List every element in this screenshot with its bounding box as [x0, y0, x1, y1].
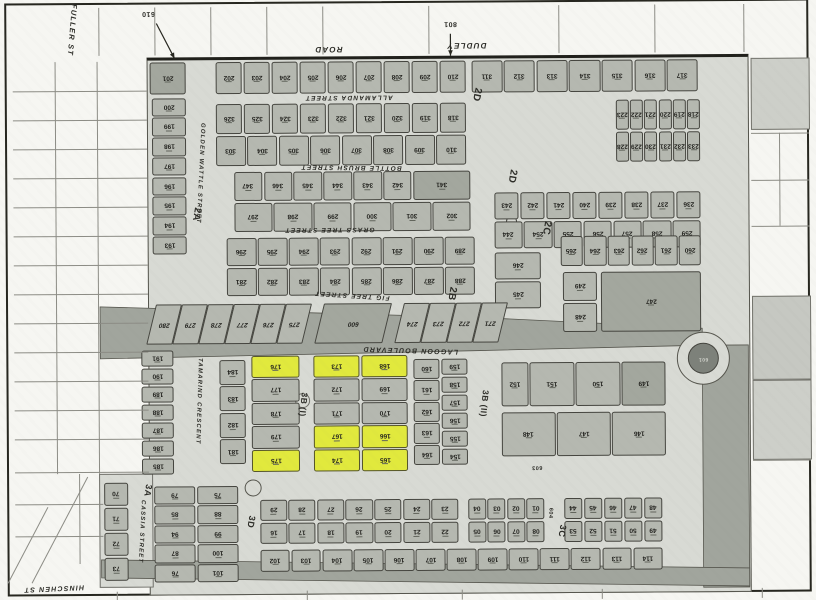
lot-number: 87 — [171, 550, 178, 556]
section-2d-mid: 2D — [506, 169, 519, 184]
lot-area-tick — [259, 154, 265, 155]
block-247-lane: 247 — [600, 270, 702, 333]
block-150s-north: 152151150149 — [500, 360, 666, 407]
lot-area-tick — [577, 290, 583, 291]
lot-206: 206 — [327, 61, 354, 94]
lot-21: 21 — [403, 522, 430, 544]
lot-number: 52 — [590, 527, 597, 533]
lot-47: 47 — [624, 497, 643, 519]
lot-178: 178 — [251, 403, 300, 426]
rural-lot-e2 — [752, 380, 811, 460]
lot-number: 191 — [152, 354, 163, 360]
lot-number: 172 — [331, 386, 342, 392]
lot-02: 02 — [507, 498, 525, 520]
lot-area-tick — [452, 460, 458, 461]
lot-area-tick — [577, 321, 583, 322]
lot-number: 85 — [171, 511, 178, 517]
lot-number: 324 — [279, 114, 290, 120]
row-bottom-lane: 102103104105106107108109110111112113114 — [260, 546, 664, 572]
lot-area-tick — [426, 284, 432, 285]
lot-205: 205 — [299, 61, 326, 94]
block-247: 247 — [600, 270, 702, 333]
lot-188: 188 — [141, 404, 174, 421]
lot-area-tick — [382, 416, 388, 417]
lot-number: 146 — [634, 429, 645, 435]
lot-347: 347 — [234, 172, 263, 202]
road-lot-601: 601 — [698, 356, 708, 362]
lot-area-tick — [334, 440, 340, 441]
lot-172: 172 — [313, 379, 360, 402]
lot-area-tick — [215, 537, 221, 538]
lot-number: 181 — [227, 448, 238, 454]
col-tamarind-east: 184183182181 — [218, 359, 247, 465]
lot-number: 18 — [327, 529, 334, 535]
lot-number: 302 — [446, 212, 457, 218]
lot-319: 319 — [411, 102, 438, 133]
lot-number: 196 — [164, 182, 175, 188]
block-2d-east-lane: 223222221220219218 — [615, 98, 701, 131]
lot-number: 167 — [331, 433, 342, 439]
section-3a: 3A — [142, 484, 154, 498]
lot-number: 23 — [441, 505, 448, 511]
lot-number: 277 — [236, 321, 248, 327]
lot-number: 276 — [262, 321, 274, 327]
lot-number: 289 — [455, 246, 466, 252]
lot-number: 600 — [347, 320, 359, 326]
lot-area-tick — [394, 189, 400, 190]
lot-346: 346 — [264, 171, 293, 201]
lot-157: 157 — [441, 394, 468, 411]
lot-area-tick — [687, 254, 693, 255]
col-tamarind-west: 191190189188187186185 — [140, 349, 175, 475]
lot-area-tick — [385, 153, 391, 154]
lot-88: 88 — [197, 505, 239, 523]
lot-area-tick — [569, 254, 575, 255]
lot-70: 70 — [104, 482, 129, 506]
lot-area-tick — [494, 535, 500, 536]
lot-103: 103 — [291, 549, 321, 572]
lot-167: 167 — [313, 426, 360, 449]
lot-number: 188 — [152, 408, 163, 414]
lot-number: 51 — [610, 527, 617, 533]
lot-244: 244 — [494, 221, 523, 249]
lot-number: 283 — [299, 277, 310, 283]
lot-area-tick — [422, 121, 428, 122]
lot-number: 159 — [449, 362, 460, 368]
lot-number: 290 — [423, 247, 434, 253]
lot-number: 194 — [164, 222, 175, 228]
lot-number: 174 — [332, 456, 343, 462]
lot-number: 110 — [518, 555, 529, 561]
lot-number: 111 — [550, 555, 560, 561]
lot-area-tick — [114, 548, 120, 549]
lot-area-tick — [533, 512, 539, 513]
lot-number: 22 — [442, 528, 449, 534]
lot-101: 101 — [197, 564, 239, 582]
lot-area-tick — [228, 154, 234, 155]
lot-area-tick — [172, 518, 178, 519]
lot-area-tick — [364, 284, 370, 285]
lot-number: 274 — [406, 320, 418, 326]
lot-number: 295 — [267, 248, 278, 254]
street-label-grass-tree: GRASS TREE STREET — [284, 226, 374, 234]
lot-number: 08 — [532, 527, 539, 533]
lot-number: 316 — [644, 71, 655, 77]
lot-number: 221 — [645, 110, 656, 116]
block-bottle-brush: 347346345344343342341297298299300301302 — [233, 170, 471, 233]
lot-area-tick — [423, 372, 429, 373]
lot-200: 200 — [151, 98, 186, 117]
lot-247: 247 — [601, 271, 702, 332]
lot-85: 85 — [154, 506, 196, 524]
lot-number: 298 — [288, 213, 299, 219]
lot-area-tick — [474, 535, 480, 536]
lot-area-tick — [634, 150, 640, 151]
lot-area-tick — [226, 122, 232, 123]
lot-111: 111 — [540, 548, 570, 571]
lot-163: 163 — [413, 423, 440, 443]
lot-27: 27 — [317, 499, 344, 521]
lot-233: 233 — [687, 131, 700, 162]
lot-222: 222 — [630, 99, 643, 130]
row-bottom: 102103104105106107108109110111112113114 — [260, 546, 664, 572]
lot-number: 177 — [270, 386, 281, 392]
lot-area-tick — [677, 150, 683, 151]
lot-number: 239 — [605, 201, 616, 207]
lot-area-tick — [226, 81, 232, 82]
lot-number: 112 — [581, 555, 592, 561]
lot-area-tick — [648, 305, 654, 306]
lot-area-tick — [662, 150, 668, 151]
lot-175: 175 — [252, 450, 301, 473]
lot-165: 165 — [362, 449, 409, 472]
lot-area-tick — [155, 416, 161, 417]
lot-150: 150 — [576, 361, 621, 406]
block-3d-lane: 16171819202122 — [259, 521, 459, 545]
lot-area-tick — [322, 154, 328, 155]
lot-149: 149 — [621, 361, 666, 406]
lot-number: 210 — [447, 72, 458, 78]
lot-305: 305 — [279, 135, 309, 166]
lot-106: 106 — [385, 549, 415, 572]
lot-area-tick — [166, 150, 172, 151]
lot-99: 99 — [197, 525, 239, 543]
lot-318: 318 — [439, 102, 466, 133]
lot-number: 173 — [331, 362, 342, 368]
lot-75: 75 — [197, 486, 239, 504]
lot-number: 73 — [113, 565, 120, 571]
lot-number: 288 — [455, 276, 466, 282]
lot-area-tick — [640, 254, 646, 255]
lot-number: 166 — [379, 432, 390, 438]
lot-number: 20 — [384, 528, 391, 534]
lot-area-tick — [113, 523, 119, 524]
lot-area-tick — [630, 534, 636, 535]
lot-159: 159 — [441, 358, 468, 375]
lot-area-tick — [330, 220, 336, 221]
lot-area-tick — [166, 130, 172, 131]
lot-number: 344 — [332, 182, 343, 188]
lot-area-tick — [356, 513, 362, 514]
parcel-boundary-line — [462, 590, 463, 600]
lot-number: 06 — [493, 528, 500, 534]
lot-number: 07 — [513, 528, 520, 534]
lot-number: 291 — [392, 247, 403, 253]
lot-area-tick — [272, 564, 278, 565]
section-2b: 2B — [445, 286, 458, 301]
lot-169: 169 — [361, 378, 408, 401]
lot-182: 182 — [219, 413, 246, 438]
lot-102: 102 — [260, 549, 290, 572]
lot-16: 16 — [260, 522, 287, 544]
lot-area-tick — [633, 118, 639, 119]
row-dudley-west-lane: 202203204205206207208209210 — [215, 60, 467, 96]
lot-area-tick — [166, 209, 172, 210]
lot-260: 260 — [679, 235, 701, 266]
lot-number: 175 — [271, 457, 282, 463]
lot-243: 243 — [494, 192, 519, 220]
lot-number: 88 — [214, 510, 221, 516]
lot-area-tick — [155, 434, 161, 435]
lot-229: 229 — [630, 131, 643, 162]
lot-number: 104 — [332, 556, 343, 562]
block-bottle-brush-lane: 347346345344343342341 — [233, 170, 471, 202]
lot-area-tick — [636, 437, 642, 438]
road-lot-603: 603 — [532, 464, 543, 470]
lot-107: 107 — [416, 548, 446, 571]
lot-area-tick — [610, 511, 616, 512]
lot-170: 170 — [361, 402, 408, 425]
lot-104: 104 — [322, 549, 352, 572]
lot-295: 295 — [258, 237, 288, 266]
lot-323: 323 — [299, 103, 326, 134]
lot-area-tick — [647, 79, 653, 80]
lot-239: 239 — [598, 191, 623, 219]
lot-area-tick — [452, 406, 458, 407]
lot-number: 263 — [613, 246, 624, 252]
lot-area-tick — [428, 563, 434, 564]
lot-152: 152 — [501, 362, 529, 407]
lot-area-tick — [452, 442, 458, 443]
lot-area-tick — [659, 208, 665, 209]
lot-242: 242 — [520, 192, 545, 220]
lot-number: 244 — [503, 231, 514, 237]
parcel-boundary-line — [117, 592, 118, 600]
lot-01: 01 — [526, 498, 544, 520]
lot-number: 343 — [362, 181, 373, 187]
lot-306: 306 — [310, 135, 340, 166]
lot-154: 154 — [442, 448, 469, 465]
lot-303: 303 — [216, 136, 246, 167]
lot-area-tick — [270, 285, 276, 286]
lot-area-tick — [590, 535, 596, 536]
lot-number: 238 — [631, 201, 642, 207]
lot-344: 344 — [323, 171, 352, 201]
lot-area-tick — [310, 81, 316, 82]
lot-number: 02 — [512, 505, 519, 511]
lot-area-tick — [590, 512, 596, 513]
lot-151: 151 — [530, 362, 575, 407]
lot-area-tick — [385, 536, 391, 537]
lot-73: 73 — [104, 557, 129, 581]
lot-179: 179 — [251, 426, 300, 449]
lot-176: 176 — [251, 355, 300, 378]
lot-area-tick — [676, 118, 682, 119]
lot-number: 229 — [631, 142, 642, 148]
lot-147: 147 — [557, 411, 611, 456]
lot-number: 287 — [424, 277, 435, 283]
lot-area-tick — [450, 121, 456, 122]
lot-291: 291 — [383, 237, 413, 266]
block-248-lane: 249 — [562, 271, 598, 302]
lot-number: 202 — [223, 74, 234, 80]
lot-287: 287 — [414, 266, 444, 295]
lot-237: 237 — [650, 191, 675, 219]
lot-area-tick — [154, 380, 160, 381]
lot-area-tick — [229, 376, 235, 377]
col-2a: 200199198197196195194193 — [151, 97, 188, 255]
lot-03: 03 — [487, 498, 505, 520]
lot-number: 158 — [449, 380, 460, 386]
lot-184: 184 — [219, 360, 246, 385]
lot-area-tick — [474, 512, 480, 513]
lot-312: 312 — [504, 60, 535, 93]
lot-number: 305 — [288, 146, 299, 152]
lot-51: 51 — [604, 520, 623, 542]
lot-29: 29 — [260, 499, 287, 521]
lot-number: 292 — [361, 247, 372, 253]
lot-area-tick — [167, 249, 173, 250]
lot-number: 247 — [646, 297, 657, 303]
lot-area-tick — [424, 415, 430, 416]
lot-area-tick — [270, 255, 276, 256]
lot-100: 100 — [197, 545, 239, 563]
lot-number: 148 — [523, 430, 534, 436]
lot-area-tick — [521, 563, 527, 564]
lot-number: 99 — [214, 530, 221, 536]
lot-number: 203 — [251, 74, 262, 80]
lot-number: 109 — [487, 555, 498, 561]
block-3d-east-lane: 04030201 — [467, 497, 545, 520]
lot-number: 163 — [421, 429, 432, 435]
block-grass-tree: 2962952942932922912902892812822832842852… — [226, 236, 476, 298]
lot-number: 218 — [688, 110, 699, 116]
lot-number: 29 — [270, 506, 277, 512]
lot-area-tick — [424, 458, 430, 459]
lot-area-tick — [610, 534, 616, 535]
lot-area-tick — [449, 219, 455, 220]
lot-number: 342 — [392, 181, 403, 187]
lot-number: 152 — [509, 380, 520, 386]
lot-area-tick — [515, 298, 521, 299]
block-3c-lane: 5352515049 — [563, 519, 663, 543]
lot-number: 154 — [449, 452, 460, 458]
lot-number: 103 — [301, 556, 312, 562]
lot-76: 76 — [154, 564, 196, 582]
lot-241: 241 — [546, 192, 571, 220]
lot-number: 45 — [590, 504, 597, 510]
lot-148: 148 — [501, 412, 555, 457]
lot-area-tick — [365, 563, 371, 564]
rural-lot-e1 — [752, 296, 812, 380]
lot-area-tick — [310, 122, 316, 123]
lot-number: 149 — [638, 379, 649, 385]
lot-308: 308 — [373, 135, 403, 166]
lot-number: 107 — [425, 556, 436, 562]
lot-area-tick — [549, 387, 555, 388]
lot-194: 194 — [152, 217, 187, 236]
lot-area-tick — [334, 393, 340, 394]
lot-area-tick — [215, 498, 221, 499]
lot-number: 21 — [413, 528, 420, 534]
lot-number: 113 — [612, 554, 623, 560]
lot-number: 241 — [553, 201, 564, 207]
lot-number: 46 — [610, 504, 617, 510]
lot-area-tick — [271, 537, 277, 538]
lot-area-tick — [155, 470, 161, 471]
lot-area-tick — [332, 285, 338, 286]
lot-number: 219 — [674, 110, 685, 116]
lot-area-tick — [273, 441, 279, 442]
lot-94: 94 — [154, 525, 196, 543]
lot-number: 264 — [590, 247, 601, 253]
lot-area-tick — [272, 370, 278, 371]
lot-area-tick — [426, 254, 432, 255]
lot-198: 198 — [152, 138, 187, 157]
lot-area-tick — [172, 498, 178, 499]
lot-230: 230 — [644, 131, 657, 162]
lot-number: 294 — [298, 247, 309, 253]
lot-area-tick — [490, 563, 496, 564]
lot-area-tick — [484, 80, 490, 81]
block-3d: 2928272625242316171819202122 — [259, 498, 459, 545]
lot-area-tick — [450, 80, 456, 81]
block-160s-lane: 159158157156155154 — [440, 358, 469, 466]
street-label-dudley: DUDLEY — [446, 41, 486, 50]
lot-number: 04 — [473, 505, 480, 511]
lot-area-tick — [457, 254, 463, 255]
col-tamarind-west-lane: 191190189188187186185 — [140, 349, 175, 475]
lot-area-tick — [155, 452, 161, 453]
lot-area-tick — [529, 209, 535, 210]
lot-108: 108 — [447, 548, 477, 571]
lot-area-tick — [114, 573, 120, 574]
lot-number: 248 — [575, 313, 586, 319]
lot-area-tick — [282, 81, 288, 82]
lot-number: 280 — [158, 321, 170, 327]
lot-number: 114 — [643, 554, 654, 560]
lot-area-tick — [505, 238, 511, 239]
lot-number: 237 — [657, 201, 668, 207]
lot-17: 17 — [289, 522, 316, 544]
lot-area-tick — [271, 514, 277, 515]
lot-228: 228 — [616, 131, 629, 162]
block-cassia-east-lane: 758899100101 — [196, 485, 240, 583]
lot-number: 03 — [493, 505, 500, 511]
block-160s: 160161162163164159158157156155154 — [412, 358, 469, 466]
lot-112: 112 — [571, 548, 601, 571]
lot-area-tick — [230, 455, 236, 456]
lot-22: 22 — [432, 521, 459, 543]
lot-06: 06 — [488, 521, 506, 543]
parcel-boundary-line — [602, 589, 603, 599]
lot-05: 05 — [468, 521, 486, 543]
lot-area-tick — [215, 518, 221, 519]
lot-301: 301 — [393, 202, 431, 232]
lot-171: 171 — [313, 402, 360, 425]
lot-320: 320 — [383, 103, 410, 134]
block-3d-east-lane: 05060708 — [467, 520, 545, 543]
